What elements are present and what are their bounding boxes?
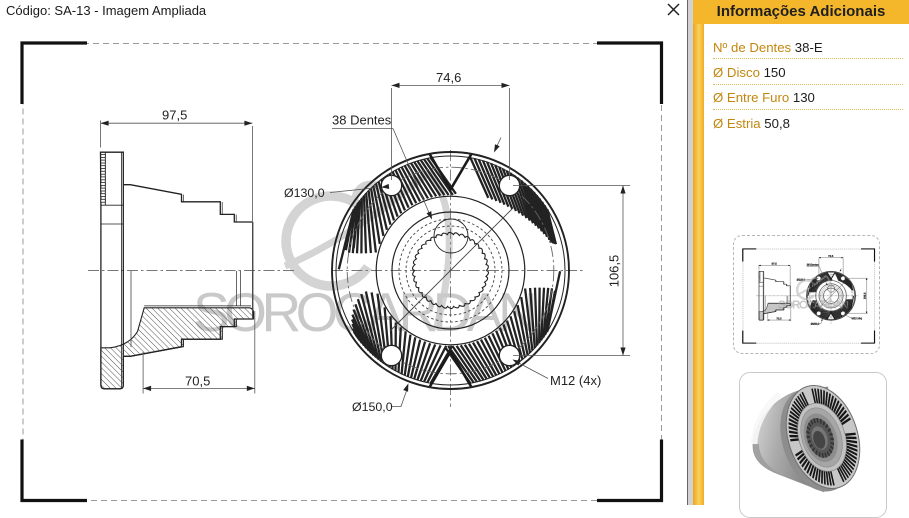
svg-text:97,5: 97,5 (162, 108, 187, 123)
svg-text:74,6: 74,6 (436, 70, 461, 85)
svg-text:106,5: 106,5 (607, 255, 622, 288)
svg-text:70,5: 70,5 (185, 373, 210, 388)
svg-text:M12 (4x): M12 (4x) (550, 373, 601, 388)
svg-text:38 Dentes: 38 Dentes (332, 113, 392, 128)
svg-text:Ø150,0: Ø150,0 (352, 400, 393, 414)
svg-text:Ø130,0: Ø130,0 (284, 186, 325, 200)
